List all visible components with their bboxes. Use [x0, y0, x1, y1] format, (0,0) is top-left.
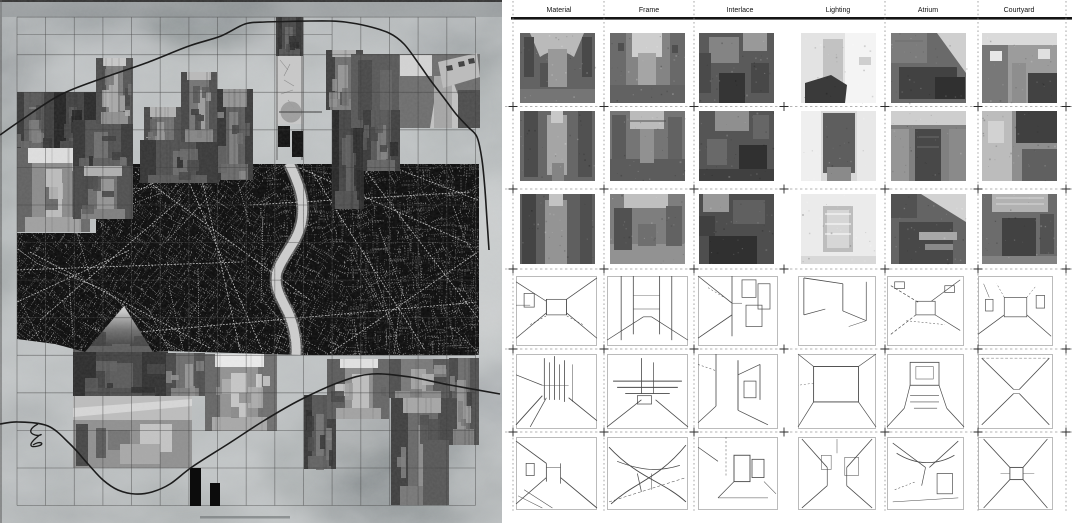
- svg-text:Material: Material: [547, 7, 572, 14]
- svg-text:Lighting: Lighting: [826, 7, 851, 14]
- svg-text:Atrium: Atrium: [918, 7, 938, 14]
- svg-text:Frame: Frame: [639, 7, 659, 14]
- svg-text:Interlace: Interlace: [727, 7, 754, 14]
- svg-text:Courtyard: Courtyard: [1004, 7, 1035, 14]
